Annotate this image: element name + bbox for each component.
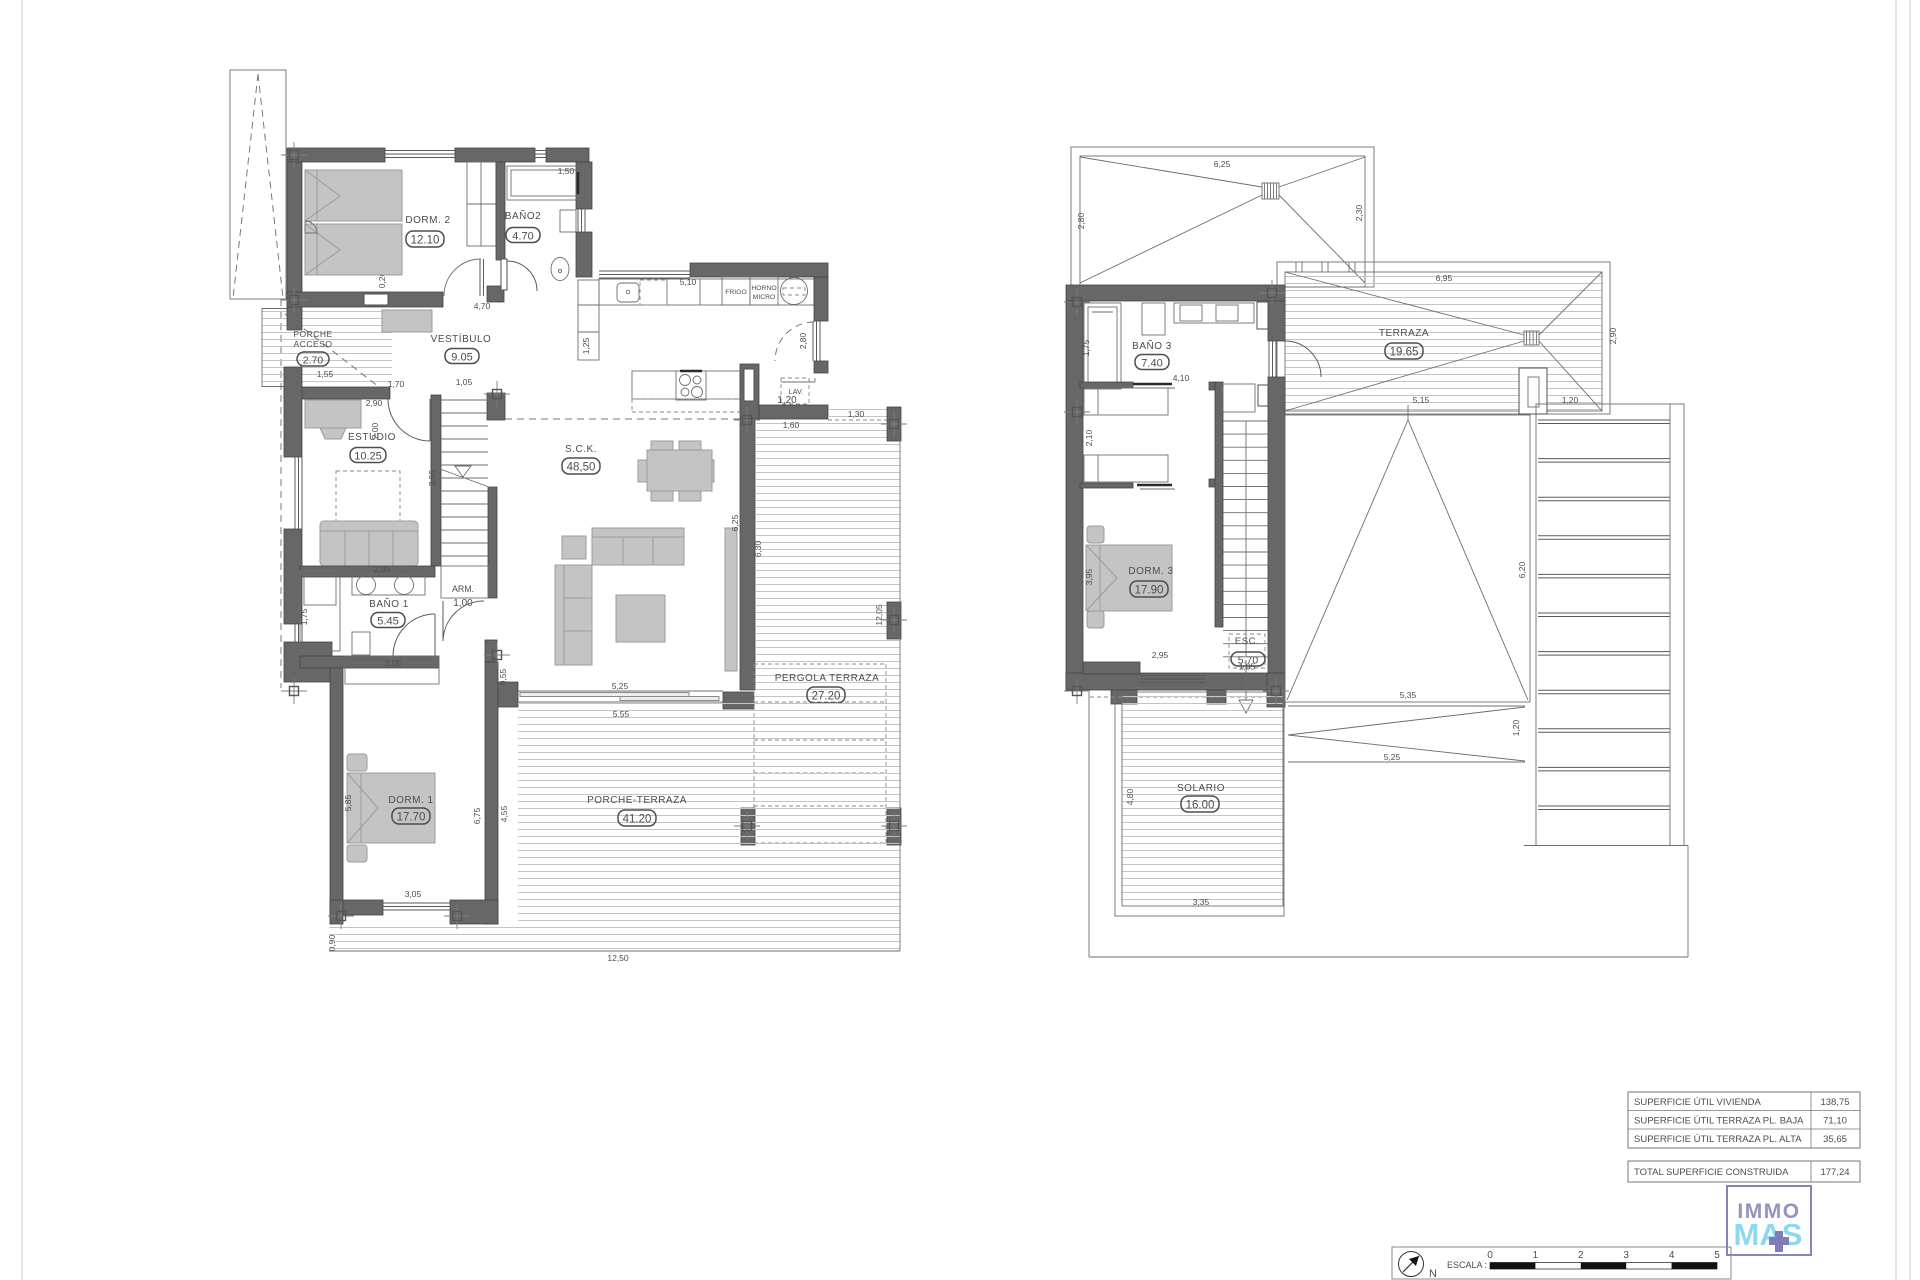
svg-text:MAS: MAS <box>1734 1217 1803 1252</box>
